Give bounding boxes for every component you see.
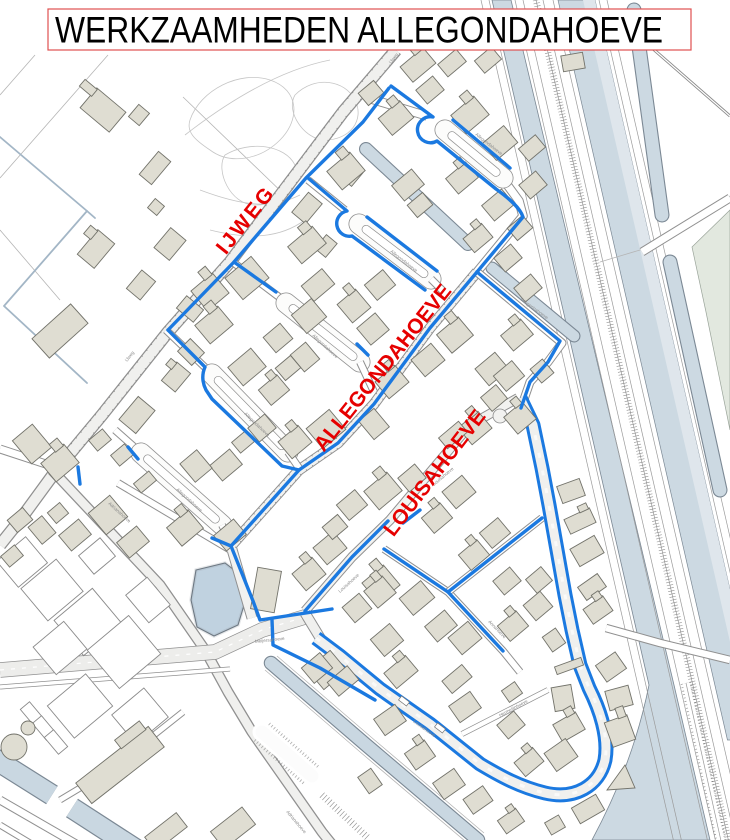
svg-text:WERKZAAMHEDEN ALLEGONDAHOEVE: WERKZAAMHEDEN ALLEGONDAHOEVE: [55, 10, 663, 51]
